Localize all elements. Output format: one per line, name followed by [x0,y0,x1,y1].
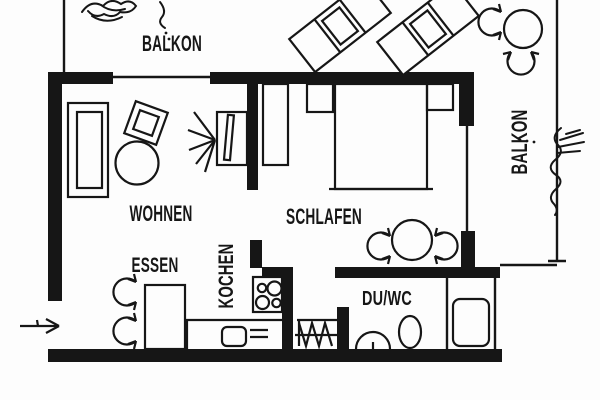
wohnen-furniture [68,101,247,197]
sofa-icon [68,103,108,197]
sun-lounger-icon [377,0,479,75]
floor-plan-svg: BALKON BALKON WOHNEN SCHLAFEN ESSEN KOCH… [0,0,600,400]
room-label-wohnen: WOHNEN [130,201,193,226]
balcony-table-icon [504,10,542,48]
dining-table-icon [145,285,185,349]
chair-icon [478,4,501,40]
nightstand-right-icon [427,84,453,110]
essen-furniture [113,274,185,349]
armchair-icon [124,101,168,145]
chair-icon [503,52,539,75]
shower-icon [453,299,489,346]
toilet-icon [399,316,421,348]
room-label-kochen: KOCHEN [215,244,238,309]
room-label-balkon-right: BALKON [507,110,532,175]
chair-icon [435,228,458,264]
entrance-arrow-icon [20,319,59,333]
coffee-table-icon [116,142,159,185]
kitchen-counter-icon [185,320,282,349]
double-bed-icon [329,84,433,189]
wall-duwc-top [335,267,500,278]
room-label-schlafen: SCHLAFEN [286,204,362,229]
floor-plan: BALKON BALKON WOHNEN SCHLAFEN ESSEN KOCH… [0,0,600,400]
schlafen-furniture [263,84,458,264]
nightstand-left-icon [307,84,333,112]
sun-lounger-icon [289,0,391,72]
room-label-essen: ESSEN [132,254,179,277]
wall-top-right [210,72,474,84]
room-label-balkon-top: BALKON [142,31,202,56]
exterior-walls [48,72,502,362]
wall-kitchen-right [282,278,293,349]
wall-bottom [48,349,502,362]
washbasin-icon [356,332,390,349]
room-label-duwc: DU/WC [362,288,412,310]
wall-wohnen-schlafen [247,84,258,190]
wall-right-upper-stub [459,84,474,126]
schlafen-table-icon [392,220,432,260]
wall-kitchen-stub [250,240,262,268]
chair-icon [367,228,390,264]
wall-right-lower-stub [461,231,475,268]
chair-icon [113,274,136,310]
radiator-icon [295,319,338,346]
wardrobe-icon [263,84,288,165]
balcony-furniture [289,0,542,75]
tv-icon [188,112,247,172]
wall-left [48,72,62,301]
chair-icon [113,313,136,349]
wall-duwc-left-stub [337,307,349,349]
stove-icon [253,277,282,312]
